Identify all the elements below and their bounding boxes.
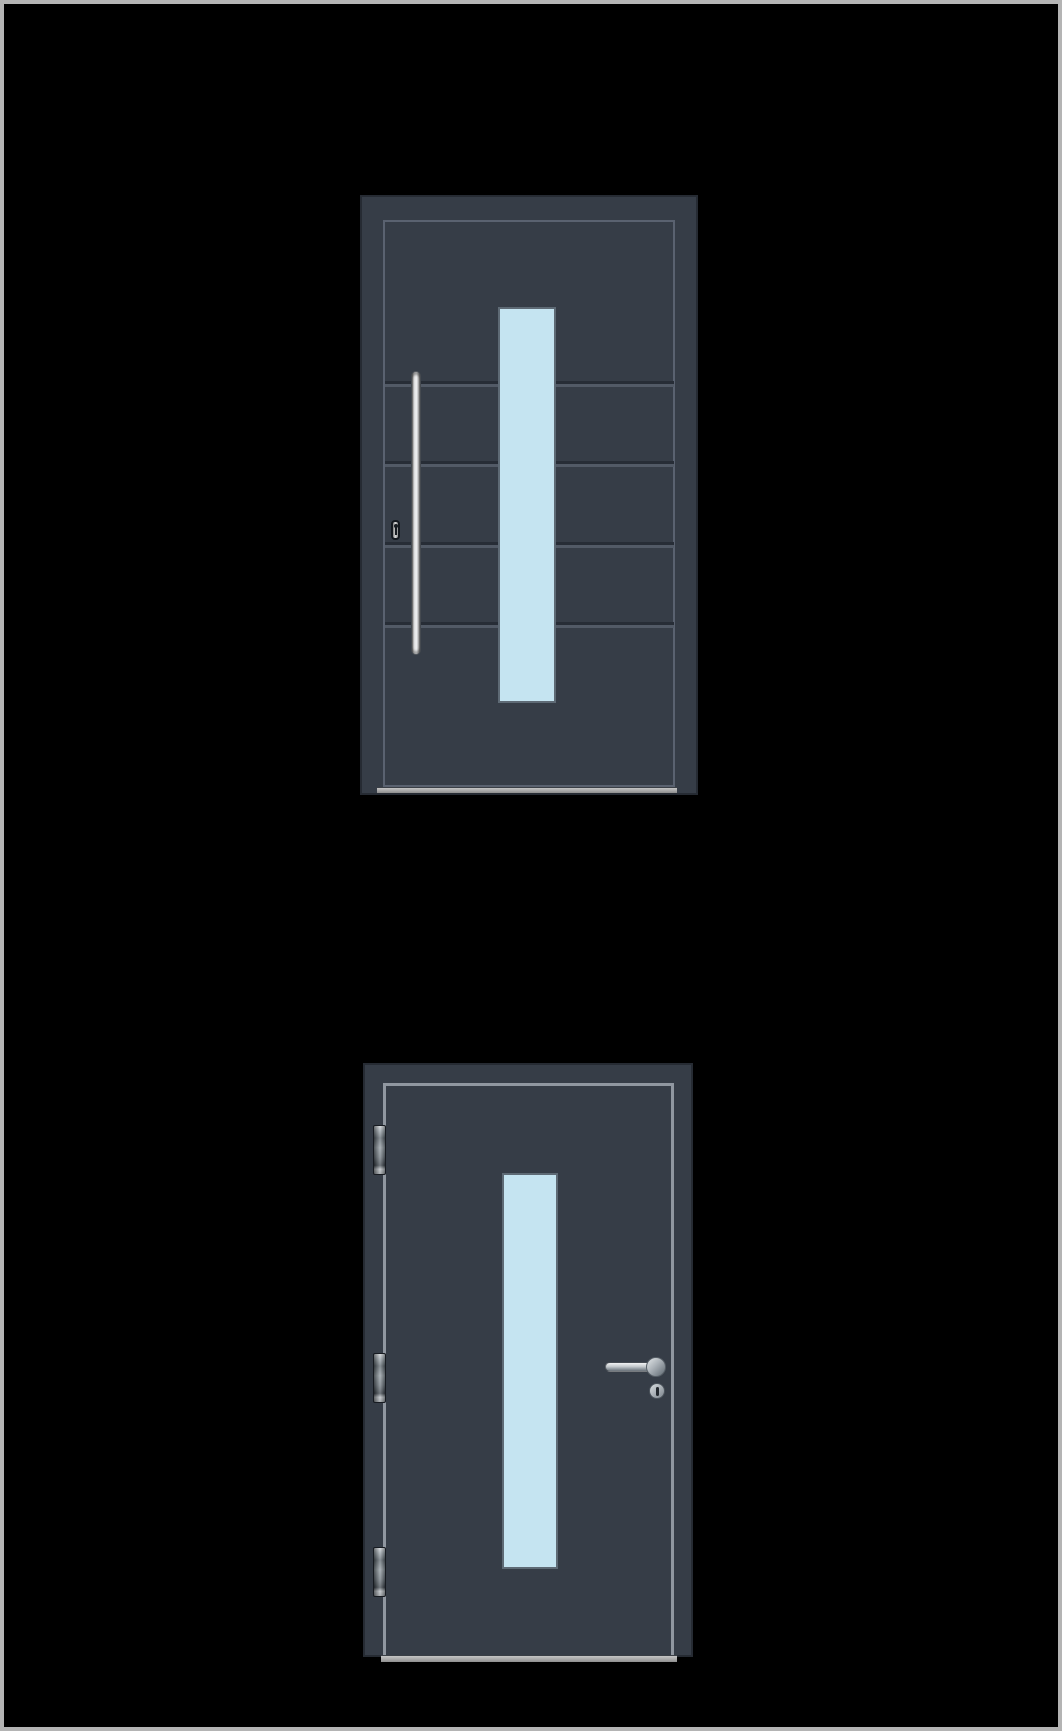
bottom-door-hinge-bottom xyxy=(373,1547,386,1597)
bottom-door-glass-panel xyxy=(502,1173,558,1569)
bottom-door-lock-cylinder xyxy=(649,1383,665,1399)
lock-cylinder-slot xyxy=(656,1387,659,1396)
bottom-door-hinge-middle xyxy=(373,1353,386,1403)
keyhole-stem xyxy=(395,527,397,535)
bottom-door-hinge-top xyxy=(373,1125,386,1175)
top-door-keyhole-icon xyxy=(391,520,400,540)
bottom-door-threshold xyxy=(381,1655,677,1662)
page-background xyxy=(0,0,1062,1731)
top-door-pull-handle xyxy=(411,371,421,655)
top-door-glass-panel xyxy=(498,307,556,703)
bottom-door-handle-rose xyxy=(646,1357,666,1377)
top-door-threshold xyxy=(377,787,677,793)
